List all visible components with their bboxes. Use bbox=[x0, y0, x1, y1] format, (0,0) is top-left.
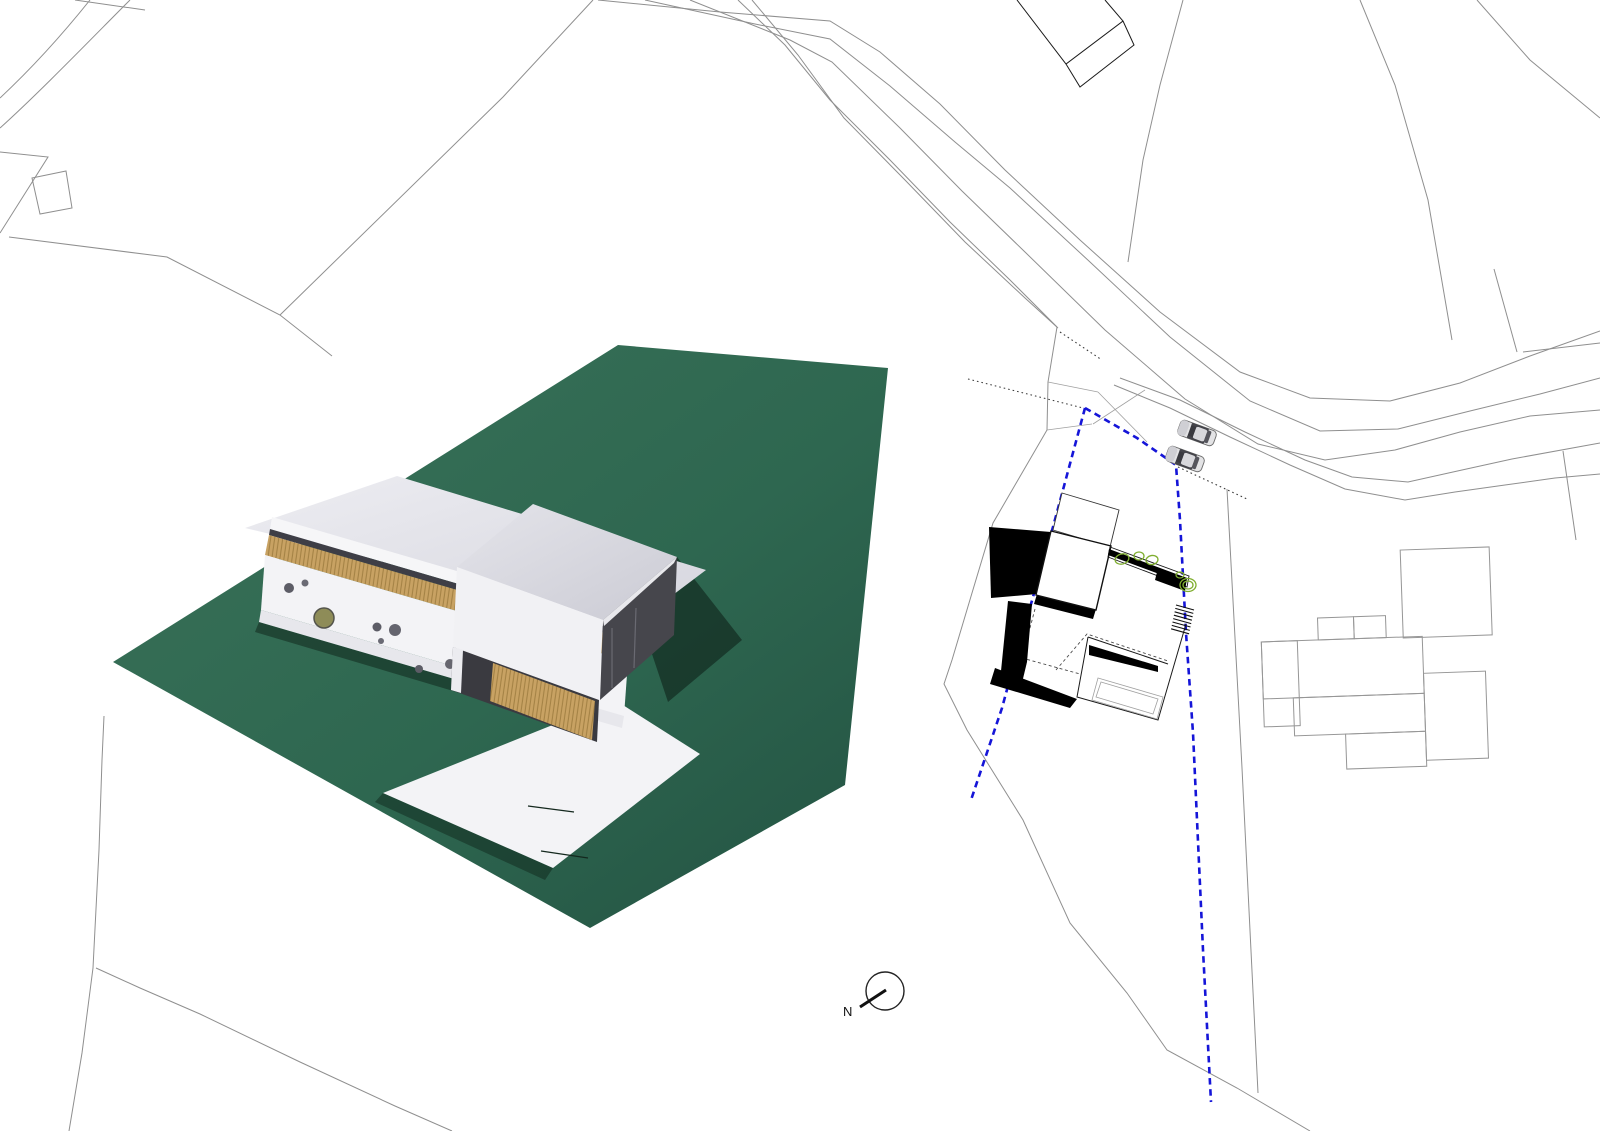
site-plan-canvas: N bbox=[0, 0, 1600, 1131]
car-icon bbox=[1164, 445, 1205, 473]
site-building-plan bbox=[989, 493, 1196, 720]
stairs-icon bbox=[1171, 605, 1194, 634]
neighbor-house-north bbox=[1017, 0, 1134, 87]
terrace bbox=[1022, 609, 1186, 720]
dotted-edges bbox=[968, 332, 1247, 499]
garden-wing bbox=[1108, 547, 1189, 591]
car-icon bbox=[1176, 419, 1217, 447]
architectural-site-plan-sheet: N bbox=[0, 0, 1600, 1131]
north-compass-icon: N bbox=[843, 972, 904, 1019]
model-carport-post bbox=[451, 647, 463, 693]
north-label: N bbox=[843, 1004, 852, 1019]
model-photo bbox=[113, 345, 888, 928]
neighbor-building-east bbox=[1258, 547, 1496, 772]
